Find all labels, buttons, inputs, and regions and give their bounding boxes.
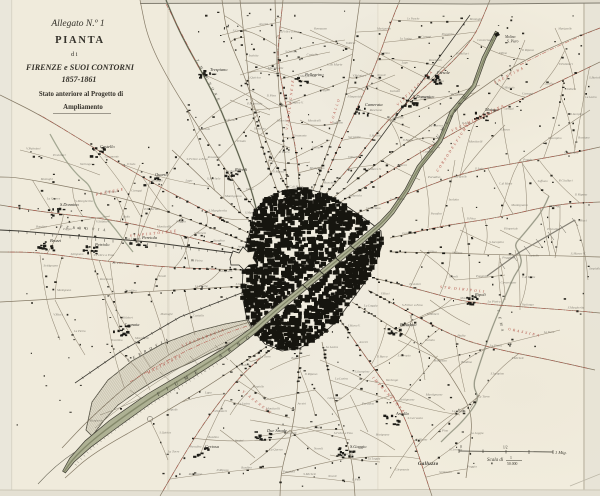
svg-text:Terzollina: Terzollina <box>110 338 123 342</box>
svg-text:La Pietra: La Pietra <box>489 344 503 348</box>
svg-text:Giramonte: Giramonte <box>395 468 409 472</box>
svg-text:Careggi: Careggi <box>522 92 533 96</box>
svg-text:La Querce: La Querce <box>268 448 283 452</box>
svg-text:S.Michele: S.Michele <box>303 472 316 476</box>
svg-text:S.Marco V.: S.Marco V. <box>245 211 259 215</box>
svg-text:V.Palmieri: V.Palmieri <box>353 74 366 78</box>
svg-text:La Torre: La Torre <box>543 330 555 334</box>
svg-text:Lapo: Lapo <box>204 390 212 394</box>
svg-text:Il Barco: Il Barco <box>278 150 290 154</box>
svg-text:Mantignano: Mantignano <box>56 288 72 292</box>
svg-text:Poggio: Poggio <box>319 88 330 92</box>
svg-text:Coverciano: Coverciano <box>366 206 381 210</box>
svg-text:Montughi: Montughi <box>160 312 173 316</box>
svg-text:Lapo: Lapo <box>401 60 409 64</box>
svg-text:Il Barco: Il Barco <box>376 355 388 359</box>
svg-text:La Torre: La Torre <box>259 355 272 359</box>
svg-text:Castello: Castello <box>544 82 555 86</box>
svg-text:FIRENZE e SUOI CONTORNI: FIRENZE e SUOI CONTORNI <box>25 63 135 72</box>
svg-text:Rovezzano: Rovezzano <box>99 277 113 281</box>
svg-text:Bandino: Bandino <box>36 225 47 229</box>
svg-text:Settignano: Settignano <box>44 264 59 268</box>
svg-text:Poggiolo: Poggiolo <box>441 32 454 36</box>
svg-text:Terzollina: Terzollina <box>254 127 266 131</box>
svg-text:S.Donnino: S.Donnino <box>60 202 79 207</box>
svg-text:Il Sodo: Il Sodo <box>126 162 136 166</box>
svg-text:Rusciano: Rusciano <box>577 135 590 139</box>
svg-text:Allegato N.º 1: Allegato N.º 1 <box>50 19 104 29</box>
svg-text:Giramonte: Giramonte <box>105 155 120 159</box>
svg-text:Due Strade: Due Strade <box>266 428 287 433</box>
svg-text:Careggi: Careggi <box>551 204 561 208</box>
svg-text:1: 1 <box>510 456 512 460</box>
svg-text:Il Riposo: Il Riposo <box>304 372 318 376</box>
svg-text:Mantignano: Mantignano <box>425 392 443 396</box>
svg-text:PIANTA: PIANTA <box>55 35 105 46</box>
svg-text:Novoli: Novoli <box>448 274 458 278</box>
svg-text:C.di Marte: C.di Marte <box>390 197 405 201</box>
svg-text:S.Domenico: S.Domenico <box>413 94 435 99</box>
svg-text:La Loggia: La Loggia <box>363 304 378 308</box>
svg-text:Careggi: Careggi <box>504 107 514 111</box>
svg-text:Bandino: Bandino <box>213 238 225 242</box>
svg-text:Brozzi: Brozzi <box>50 238 62 243</box>
svg-text:La Loggia: La Loggia <box>367 456 381 460</box>
svg-text:Coverciano: Coverciano <box>477 38 493 42</box>
svg-text:P.Imperiale: P.Imperiale <box>143 207 160 211</box>
svg-text:Le Panche: Le Panche <box>111 261 127 265</box>
svg-text:S.Michele: S.Michele <box>194 231 207 235</box>
svg-text:V.Palmieri: V.Palmieri <box>26 147 40 151</box>
svg-text:Rusciano: Rusciano <box>323 181 337 185</box>
svg-text:La Torre: La Torre <box>477 395 491 399</box>
svg-text:Quarto: Quarto <box>155 172 168 177</box>
svg-text:Villino: Villino <box>499 51 507 55</box>
svg-text:Il Pino: Il Pino <box>351 477 361 481</box>
svg-text:Settignano: Settignano <box>71 252 84 256</box>
svg-text:1857-1861: 1857-1861 <box>62 75 97 84</box>
svg-text:Il Pino: Il Pino <box>266 94 277 98</box>
svg-text:Bandino: Bandino <box>461 360 472 364</box>
svg-text:S.Quirico: S.Quirico <box>248 76 261 80</box>
svg-text:Rovezzano: Rovezzano <box>313 27 327 31</box>
svg-text:Novoli: Novoli <box>327 474 336 478</box>
svg-text:Villino: Villino <box>381 51 390 55</box>
svg-text:La Torre: La Torre <box>167 449 180 453</box>
svg-text:La Loggia: La Loggia <box>470 431 484 435</box>
svg-text:S.Michele: S.Michele <box>502 86 515 90</box>
svg-text:Rusciano: Rusciano <box>369 108 383 112</box>
svg-text:S.Quirico: S.Quirico <box>392 116 404 120</box>
svg-text:C.di Marte: C.di Marte <box>522 275 536 279</box>
svg-text:Careggi: Careggi <box>131 189 142 193</box>
svg-text:S.Felice a Ema: S.Felice a Ema <box>187 157 209 161</box>
svg-text:Paradiso: Paradiso <box>361 401 375 405</box>
svg-text:Soffiano: Soffiano <box>416 437 428 441</box>
svg-text:Soffiano: Soffiano <box>332 120 343 124</box>
svg-text:S.Bartolo: S.Bartolo <box>349 194 362 198</box>
svg-text:Monticelli: Monticelli <box>307 118 321 122</box>
svg-text:S.Iacopino: S.Iacopino <box>489 240 504 244</box>
svg-text:C.di Marte: C.di Marte <box>289 185 304 189</box>
svg-text:Scala di: Scala di <box>487 458 504 463</box>
svg-text:Marignolle: Marignolle <box>453 175 468 179</box>
svg-text:V.Ricci: V.Ricci <box>53 312 63 316</box>
svg-text:Varlungo: Varlungo <box>80 162 92 166</box>
svg-text:V.Palmieri: V.Palmieri <box>559 62 573 66</box>
svg-text:S.Margherita: S.Margherita <box>208 208 227 212</box>
svg-text:P.Giullari: P.Giullari <box>546 227 560 231</box>
svg-text:Rifredi: Rifredi <box>234 167 248 172</box>
svg-text:La Lastra: La Lastra <box>399 37 412 41</box>
svg-text:Careggi: Careggi <box>421 34 431 38</box>
svg-text:La Lastra: La Lastra <box>237 401 250 405</box>
svg-text:V.Stibbert: V.Stibbert <box>120 315 133 319</box>
svg-text:La Querce: La Querce <box>401 231 416 235</box>
svg-text:1 Mig.: 1 Mig. <box>555 450 567 455</box>
svg-text:1/2: 1/2 <box>503 446 508 450</box>
svg-text:S.Iacopino: S.Iacopino <box>355 369 370 373</box>
svg-text:Ricorboli: Ricorboli <box>399 322 417 327</box>
svg-text:Varlungo: Varlungo <box>522 303 534 307</box>
svg-text:Terzollina: Terzollina <box>125 288 137 292</box>
svg-text:P.Imperiale: P.Imperiale <box>338 452 354 456</box>
svg-text:Lapo: Lapo <box>185 179 193 183</box>
svg-text:Isolotto: Isolotto <box>424 338 435 342</box>
svg-text:S.Iacopino: S.Iacopino <box>571 112 584 116</box>
svg-text:Paradiso: Paradiso <box>189 445 202 449</box>
svg-text:Settignano: Settignano <box>400 397 415 401</box>
svg-text:S.Marco V.: S.Marco V. <box>368 167 382 171</box>
svg-text:Musignano: Musignano <box>433 359 448 363</box>
svg-text:Il Riposo: Il Riposo <box>574 193 588 197</box>
svg-text:C.di Marte: C.di Marte <box>499 181 513 185</box>
svg-text:P.Giullari: P.Giullari <box>408 282 421 286</box>
svg-text:Arcetri: Arcetri <box>258 22 269 26</box>
svg-text:Il Sodo: Il Sodo <box>474 166 484 170</box>
svg-text:Castello: Castello <box>529 253 540 257</box>
svg-text:Monticelli: Monticelli <box>134 336 149 340</box>
svg-text:Ampliamento: Ampliamento <box>63 104 103 111</box>
svg-text:Badia: Badia <box>123 215 130 219</box>
svg-text:S.Felice a Ema: S.Felice a Ema <box>280 30 300 34</box>
svg-text:La Lastra: La Lastra <box>584 95 597 99</box>
svg-text:Badia: Badia <box>291 356 299 360</box>
svg-text:P.Giullari: P.Giullari <box>455 52 469 56</box>
svg-text:S.Felice a Ema: S.Felice a Ema <box>94 253 115 257</box>
svg-text:Badia: Badia <box>314 425 322 429</box>
svg-text:S.Margherita: S.Margherita <box>568 306 585 310</box>
svg-text:Marignolle: Marignolle <box>557 27 572 31</box>
svg-text:S.Marco V.: S.Marco V. <box>571 252 586 256</box>
svg-text:S.Gervasio: S.Gervasio <box>408 416 424 420</box>
svg-text:S.Iacopino: S.Iacopino <box>491 372 505 376</box>
svg-text:Trespiano: Trespiano <box>210 67 228 72</box>
svg-text:Poggio: Poggio <box>175 219 186 223</box>
svg-text:La Pietra: La Pietra <box>487 300 501 304</box>
svg-text:Serpiolle: Serpiolle <box>253 385 265 389</box>
svg-text:Mantignano: Mantignano <box>510 203 528 207</box>
svg-text:Il Barco: Il Barco <box>402 138 414 142</box>
svg-text:Serpiolle: Serpiolle <box>286 431 297 435</box>
svg-text:Bandino: Bandino <box>208 435 219 439</box>
svg-text:Villino: Villino <box>246 187 254 191</box>
svg-text:Pellegrino: Pellegrino <box>304 72 324 77</box>
svg-text:Varlungo: Varlungo <box>386 378 399 382</box>
svg-text:Soffiano: Soffiano <box>538 179 549 183</box>
svg-text:Castello: Castello <box>193 313 205 317</box>
svg-text:Isolotto: Isolotto <box>448 197 459 201</box>
svg-text:P.Imperiale: P.Imperiale <box>246 102 263 106</box>
svg-text:Serpiolle: Serpiolle <box>589 266 600 270</box>
svg-text:Poggiolo: Poggiolo <box>475 274 488 278</box>
svg-text:S.Bartolo: S.Bartolo <box>589 75 600 79</box>
svg-text:S.Bartolo: S.Bartolo <box>369 134 381 138</box>
svg-text:La Pietra: La Pietra <box>190 259 203 263</box>
svg-text:0: 0 <box>460 445 462 449</box>
svg-text:La Pietra: La Pietra <box>73 329 86 333</box>
svg-text:Novoli: Novoli <box>376 73 385 77</box>
svg-text:Marignolle: Marignolle <box>376 27 392 31</box>
svg-text:P.Imperiale: P.Imperiale <box>347 94 363 98</box>
svg-text:Bandino: Bandino <box>241 466 252 470</box>
svg-text:S.Felice a Ema: S.Felice a Ema <box>334 431 353 435</box>
svg-text:Isolotto: Isolotto <box>389 89 400 93</box>
svg-text:Terzollina: Terzollina <box>238 363 250 367</box>
svg-text:Novoli: Novoli <box>157 274 166 278</box>
svg-text:Lapo: Lapo <box>209 72 217 76</box>
svg-text:P.Giullari: P.Giullari <box>52 153 66 157</box>
svg-text:Legnaia: Legnaia <box>124 322 140 327</box>
svg-text:V.Ricci: V.Ricci <box>346 41 356 45</box>
svg-text:S.Iacopino: S.Iacopino <box>548 136 562 140</box>
svg-text:Rovezzano: Rovezzano <box>207 155 221 159</box>
svg-text:Petriolo: Petriolo <box>94 242 110 247</box>
svg-text:Il Sodo: Il Sodo <box>236 139 247 143</box>
svg-text:Poggiolo: Poggiolo <box>501 256 515 260</box>
svg-text:Novoli: Novoli <box>313 446 323 450</box>
svg-text:Arcetri: Arcetri <box>358 340 368 344</box>
svg-text:S.Margherita: S.Margherita <box>88 418 104 422</box>
svg-text:Stato anteriore al Progetto di: Stato anteriore al Progetto di <box>39 91 123 98</box>
svg-text:Monticelli: Monticelli <box>156 225 171 229</box>
svg-text:V.Ricci: V.Ricci <box>348 155 357 159</box>
svg-text:di: di <box>71 51 79 58</box>
svg-text:Musignano: Musignano <box>459 296 475 300</box>
svg-text:Montughi: Montughi <box>40 177 53 181</box>
svg-text:Isolotto: Isolotto <box>248 54 259 58</box>
svg-text:Castello: Castello <box>100 144 115 149</box>
svg-text:Arcetri: Arcetri <box>234 438 244 442</box>
svg-text:P.Giullari: P.Giullari <box>558 179 573 183</box>
svg-text:Il Riposo: Il Riposo <box>521 48 534 52</box>
svg-text:S.Quirico: S.Quirico <box>285 49 297 53</box>
svg-text:Coverciano: Coverciano <box>501 281 517 285</box>
svg-text:V.Palmieri: V.Palmieri <box>213 409 227 413</box>
svg-text:V.Stibbert: V.Stibbert <box>96 220 109 224</box>
svg-text:Musignano: Musignano <box>309 166 325 170</box>
svg-text:S.Michele: S.Michele <box>512 356 525 360</box>
svg-text:V.Ricci: V.Ricci <box>381 291 390 295</box>
svg-text:Il Pino: Il Pino <box>466 216 476 220</box>
svg-text:Marignolle: Marignolle <box>267 66 284 70</box>
svg-text:Arcetri: Arcetri <box>297 402 307 406</box>
svg-text:Rovezzano: Rovezzano <box>428 58 442 62</box>
svg-text:V.Stibbert: V.Stibbert <box>427 312 439 316</box>
svg-text:Le Panche: Le Panche <box>406 16 420 20</box>
svg-text:Molino: Molino <box>504 35 516 39</box>
svg-text:Monticelli: Monticelli <box>468 140 483 144</box>
svg-text:V.Ricci: V.Ricci <box>578 218 587 222</box>
svg-text:Coverciano: Coverciano <box>564 150 579 154</box>
svg-text:C.di Marte: C.di Marte <box>327 63 343 67</box>
svg-text:Poggio: Poggio <box>522 157 532 161</box>
svg-text:La Lastra: La Lastra <box>325 345 339 349</box>
svg-text:Poggio: Poggio <box>466 465 477 469</box>
svg-text:Varlungo: Varlungo <box>432 79 445 83</box>
svg-text:Il Barco: Il Barco <box>499 128 511 132</box>
svg-text:S.Quirico: S.Quirico <box>160 430 172 434</box>
svg-text:Certosa: Certosa <box>205 444 220 449</box>
svg-text:Il Pino: Il Pino <box>438 428 448 432</box>
svg-text:S.Bartolo: S.Bartolo <box>198 127 211 131</box>
svg-text:Villino: Villino <box>428 250 437 254</box>
svg-text:Soffiano: Soffiano <box>225 118 236 122</box>
svg-text:Soffiano: Soffiano <box>452 251 463 255</box>
svg-text:Camerata: Camerata <box>365 102 383 107</box>
svg-text:S.Gervasio: S.Gervasio <box>398 353 411 357</box>
svg-text:Serpiolle: Serpiolle <box>167 408 178 412</box>
svg-text:S.Marco V.: S.Marco V. <box>348 324 361 328</box>
svg-text:S.Gervasio: S.Gervasio <box>236 282 250 286</box>
svg-text:Serpiolle: Serpiolle <box>348 135 361 139</box>
svg-text:V.Stibbert: V.Stibbert <box>564 87 576 91</box>
svg-text:Le Panche: Le Panche <box>194 284 208 288</box>
svg-text:Settignano: Settignano <box>439 470 452 474</box>
svg-text:Poggiolo: Poggiolo <box>282 469 295 473</box>
svg-text:La Querce: La Querce <box>46 196 61 200</box>
svg-text:S.Felice a Ema: S.Felice a Ema <box>402 303 423 307</box>
svg-text:Montughi: Montughi <box>150 179 163 183</box>
svg-text:Rovezzano: Rovezzano <box>188 472 203 476</box>
svg-text:Paradiso: Paradiso <box>430 212 443 216</box>
svg-text:P.Imperiale: P.Imperiale <box>503 227 519 231</box>
svg-text:Musignano: Musignano <box>375 432 390 436</box>
svg-text:La Loggia: La Loggia <box>451 409 466 413</box>
svg-text:Castello: Castello <box>307 53 319 57</box>
svg-text:Settignano: Settignano <box>220 269 233 273</box>
svg-text:Badia: Badia <box>457 333 465 337</box>
svg-text:Mantignano: Mantignano <box>224 194 242 198</box>
svg-text:Il Riposo: Il Riposo <box>272 169 285 173</box>
svg-text:Galluzzo: Galluzzo <box>418 462 439 467</box>
svg-text:S.Gaggio: S.Gaggio <box>350 444 367 449</box>
svg-text:Paradiso: Paradiso <box>427 175 441 179</box>
svg-text:S.Michele: S.Michele <box>207 177 221 181</box>
svg-text:Fiesole: Fiesole <box>436 70 450 75</box>
svg-text:S. Piero: S. Piero <box>507 40 519 44</box>
svg-text:50.000: 50.000 <box>507 462 518 466</box>
svg-text:Villino: Villino <box>312 146 320 150</box>
svg-text:S.Gervasio: S.Gervasio <box>233 28 248 32</box>
svg-text:La Lastra: La Lastra <box>334 377 348 381</box>
svg-text:Giramonte: Giramonte <box>328 396 343 400</box>
svg-text:Arcetri: Arcetri <box>237 244 247 248</box>
svg-text:Il Riposo: Il Riposo <box>216 468 229 472</box>
svg-text:Montughi: Montughi <box>469 17 482 21</box>
svg-text:Giramonte: Giramonte <box>293 134 307 138</box>
svg-text:Il Barco: Il Barco <box>396 163 407 167</box>
